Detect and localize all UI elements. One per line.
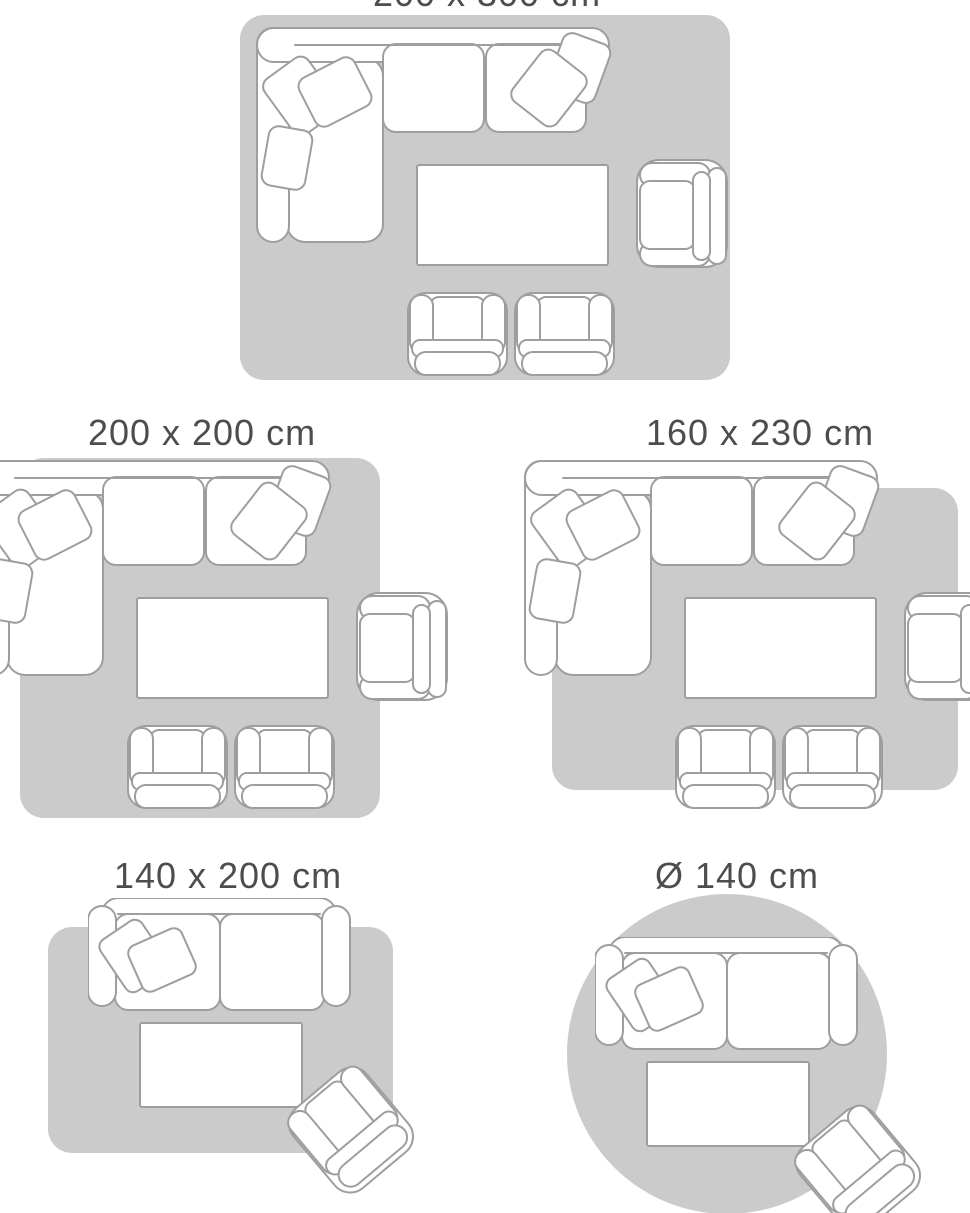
furniture-scene-small — [88, 898, 428, 1213]
furniture-scene-small — [595, 937, 935, 1213]
size-label: Ø 140 cm — [537, 854, 937, 898]
size-label: 160 x 230 cm — [560, 411, 960, 455]
size-label: 140 x 200 cm — [28, 854, 428, 898]
size-label: 200 x 300 cm — [287, 0, 687, 16]
rug-size-guide: 200 x 300 cm 200 x 200 cm 160 x 230 cm 1… — [0, 0, 970, 1213]
furniture-scene-large — [253, 22, 728, 378]
furniture-scene-large — [0, 455, 448, 811]
furniture-scene-large — [521, 455, 970, 811]
size-label: 200 x 200 cm — [2, 411, 402, 455]
